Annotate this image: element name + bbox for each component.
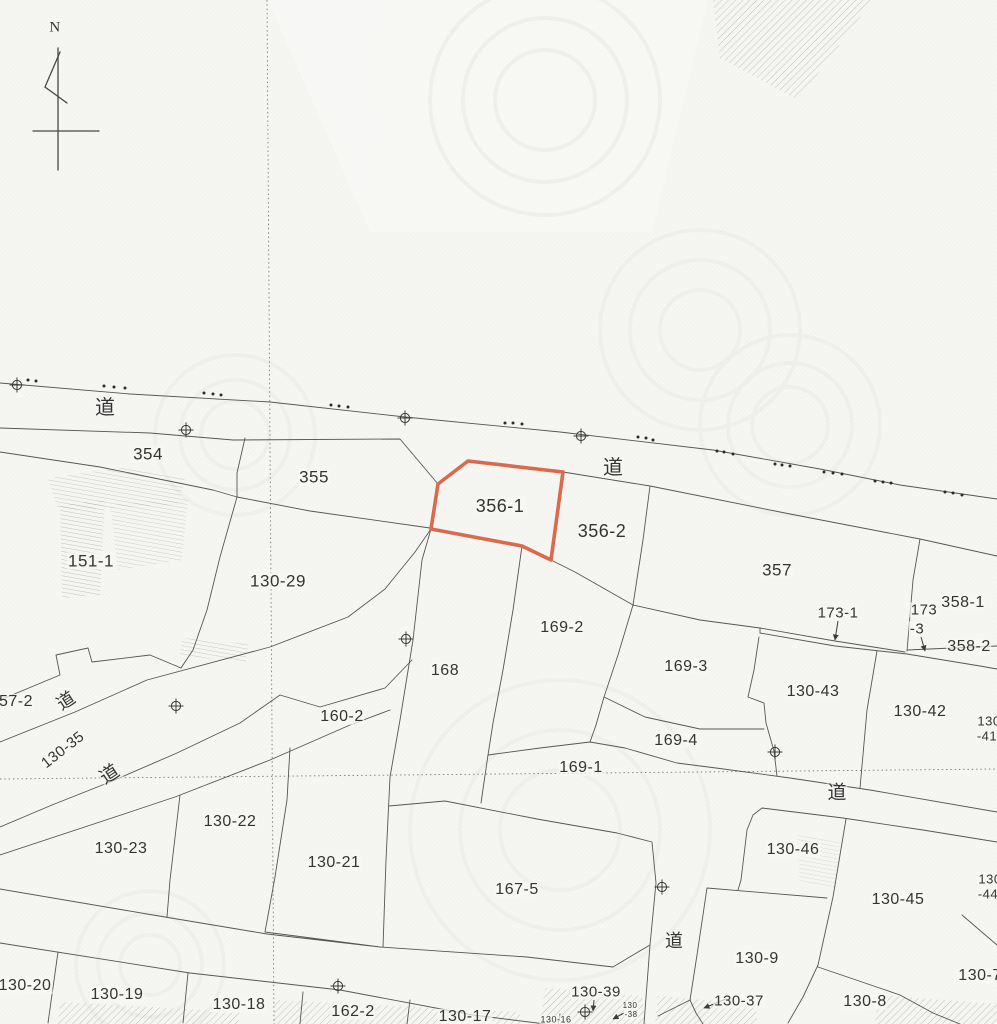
parcel-label-168: 168: [430, 663, 460, 679]
parcel-label-130-16: 130-16: [539, 1015, 572, 1024]
parcel-label-130-45: 130-45: [871, 892, 926, 908]
parcel-label-356-2: 356-2: [577, 522, 628, 540]
parcel-label-130-37: 130-37: [713, 993, 765, 1008]
cadastral-map: 354355151-1130-29356-1356-2357173-1173-3…: [0, 0, 997, 1024]
parcel-label-130-22: 130-22: [203, 814, 258, 830]
road-label-road-2: 道: [602, 458, 624, 478]
road-label-road-6: 道: [664, 932, 684, 950]
parcel-label-151-1: 151-1: [67, 552, 115, 569]
parcel-label-130-21: 130-21: [307, 855, 362, 871]
parcel-label-130-44-line2: -44: [977, 887, 997, 900]
parcel-label-169-2: 169-2: [539, 620, 584, 636]
road-label-road-3: 道: [53, 688, 80, 714]
road-label-road-4: 道: [96, 761, 124, 789]
parcel-label-173-1: 173-1: [817, 605, 860, 620]
parcel-label-354: 354: [132, 445, 164, 462]
road-label-road-1: 道: [94, 398, 116, 418]
parcel-labels-layer: 354355151-1130-29356-1356-2357173-1173-3…: [0, 0, 997, 1024]
parcel-label-357: 357: [761, 561, 793, 578]
parcel-label-130-23: 130-23: [94, 841, 149, 857]
parcel-label-130-35: 130-35: [38, 728, 88, 772]
parcel-label-130-41-line2: -41: [976, 729, 997, 742]
parcel-label-173-3-line2: -3: [909, 621, 925, 636]
parcel-label-167-5: 167-5: [494, 882, 539, 898]
road-label-road-5: 道: [826, 783, 847, 802]
parcel-label-356-1: 356-1: [475, 497, 526, 515]
parcel-label-130-7: 130-7: [957, 968, 997, 984]
parcel-label-358-2: 358-2: [946, 639, 991, 655]
parcel-label-173-3-line1: 173: [910, 602, 939, 617]
parcel-label-160-2: 160-2: [319, 709, 364, 725]
parcel-label-57-2: 57-2: [0, 694, 34, 710]
parcel-label-162-2: 162-2: [330, 1004, 375, 1020]
parcel-label-130-9: 130-9: [734, 951, 779, 967]
compass-label-n: N: [48, 20, 61, 35]
parcel-label-130-17: 130-17: [438, 1009, 493, 1024]
parcel-label-358-1: 358-1: [940, 595, 985, 611]
parcel-label-130-29: 130-29: [249, 572, 307, 589]
parcel-label-130-41-line1: 130: [976, 714, 997, 727]
parcel-label-169-4: 169-4: [653, 733, 698, 749]
parcel-label-169-3: 169-3: [663, 659, 708, 675]
parcel-label-130-46: 130-46: [766, 842, 821, 858]
parcel-label-130-18: 130-18: [212, 997, 267, 1013]
parcel-label-130-20: 130-20: [0, 978, 52, 994]
parcel-label-130-44-line1: 130: [977, 872, 997, 885]
parcel-label-130-39: 130-39: [570, 984, 622, 999]
parcel-label-130-38-line1: 130: [622, 1002, 639, 1010]
parcel-label-130-42: 130-42: [893, 704, 948, 720]
parcel-label-130-8: 130-8: [842, 994, 887, 1010]
parcel-label-130-38-line2: -38: [623, 1011, 638, 1019]
parcel-label-130-19: 130-19: [90, 987, 145, 1003]
parcel-label-169-1: 169-1: [558, 760, 603, 776]
parcel-label-355: 355: [298, 468, 330, 485]
parcel-label-130-43: 130-43: [786, 684, 841, 700]
